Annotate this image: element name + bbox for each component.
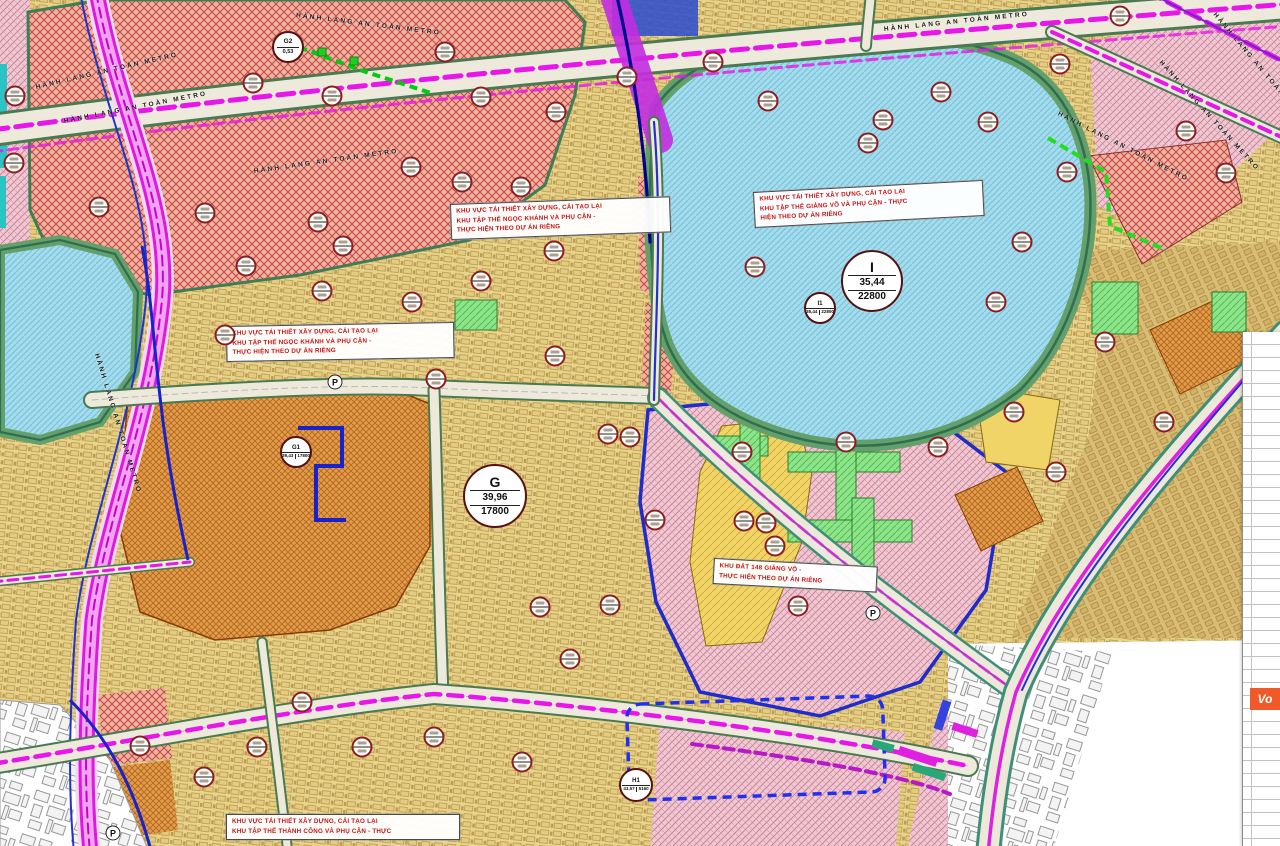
- parcel-marker: [512, 752, 533, 773]
- zone-id: G: [490, 475, 501, 489]
- parcel-marker: [89, 197, 110, 218]
- annotation-box: KHU VỰC TÁI THIẾT XÂY DỰNG, CẢI TẠO LẠI …: [753, 180, 985, 227]
- parcel-marker: [1176, 121, 1197, 142]
- parcel-marker: [471, 271, 492, 292]
- parcel-marker: [1095, 332, 1116, 353]
- metro-corridor-label: HÀNH LANG AN TOÀN METRO: [63, 90, 208, 125]
- parcel-marker: [788, 596, 809, 617]
- parcel-marker: [645, 510, 666, 531]
- zone-marker-g: G 39,96 17800: [463, 464, 527, 528]
- annotation-box: KHU ĐẤT 148 GIẢNG VÕ - THỰC HIỆN THEO DỰ…: [713, 558, 878, 593]
- zone-marker-g2: G2 0,53: [272, 31, 304, 63]
- parcel-marker: [1110, 6, 1131, 27]
- zone-value: 35,44: [805, 310, 820, 315]
- parcel-marker: [333, 236, 354, 257]
- parcel-marker: [732, 442, 753, 463]
- metro-corridor-label: HÀNH LANG AN TOÀN METRO: [884, 11, 1030, 34]
- parcel-marker: [322, 86, 343, 107]
- parcel-marker: [1004, 402, 1025, 423]
- parcel-marker: [544, 241, 565, 262]
- parcel-marker: [758, 91, 779, 112]
- parcel-marker: [1046, 462, 1067, 483]
- parcel-marker: [247, 737, 268, 758]
- parcel-marker: [873, 110, 894, 131]
- metro-corridor-label: HÀNH LANG AN TOÀN METRO: [35, 51, 179, 91]
- parcel-marker: [243, 73, 264, 94]
- parcel-marker: [765, 536, 786, 557]
- parking-icon: P: [866, 606, 881, 621]
- parcel-marker: [292, 692, 313, 713]
- parcel-marker: [452, 172, 473, 193]
- zone-id: H1: [632, 778, 640, 784]
- parcel-marker: [546, 102, 567, 123]
- parcel-marker: [734, 511, 755, 532]
- zone-area: 5160: [637, 787, 650, 792]
- zone-value: 39,96: [470, 490, 520, 506]
- parcel-marker: [195, 203, 216, 224]
- parking-icon: P: [106, 826, 121, 841]
- parcel-marker: [617, 67, 638, 88]
- planning-map[interactable]: HÀNH LANG AN TOÀN METROHÀNH LANG AN TOÀN…: [0, 0, 1280, 846]
- parcel-marker: [5, 86, 26, 107]
- parcel-marker: [511, 177, 532, 198]
- annotation-box: KHU VỰC TÁI THIẾT XÂY DỰNG, CẢI TẠO LẠI …: [226, 814, 460, 840]
- parcel-marker: [435, 42, 456, 63]
- labels-layer: HÀNH LANG AN TOÀN METROHÀNH LANG AN TOÀN…: [0, 0, 1280, 846]
- metro-corridor-label: HÀNH LANG AN TOÀN METRO: [1211, 11, 1280, 128]
- zone-marker-h1: H1 43,575160: [619, 768, 653, 802]
- parcel-marker: [703, 52, 724, 73]
- annotation-line: KHU VỰC TÁI THIẾT XÂY DỰNG, CẢI TẠO LẠI: [232, 818, 454, 827]
- parcel-marker: [836, 432, 857, 453]
- zone-value: 35,44: [848, 275, 897, 291]
- parcel-marker: [1216, 163, 1237, 184]
- zone-value: 0,53: [277, 47, 299, 55]
- zone-value: 43,57: [622, 787, 637, 792]
- zone-marker-i1: I1 35,4422800: [804, 292, 836, 324]
- parcel-marker: [215, 325, 236, 346]
- parcel-marker: [401, 157, 422, 178]
- parcel-marker: [194, 767, 215, 788]
- parcel-marker: [600, 595, 621, 616]
- legend-table: [1242, 332, 1280, 846]
- parcel-marker: [931, 82, 952, 103]
- parcel-marker: [530, 597, 551, 618]
- annotation-box: KHU VỰC TÁI THIẾT XÂY DỰNG, CẢI TẠO LẠI …: [226, 322, 455, 361]
- parcel-marker: [986, 292, 1007, 313]
- logo-fragment: Vo: [1250, 688, 1280, 710]
- annotation-line: KHU TẬP THỂ THÀNH CÔNG VÀ PHỤ CẬN - THỰC: [232, 828, 454, 837]
- parcel-marker: [424, 727, 445, 748]
- parcel-marker: [745, 257, 766, 278]
- zone-id: G1: [292, 445, 300, 451]
- parcel-marker: [312, 281, 333, 302]
- parcel-marker: [308, 212, 329, 233]
- parcel-marker: [978, 112, 999, 133]
- parcel-marker: [471, 87, 492, 108]
- metro-corridor-label: HÀNH LANG AN TOÀN METRO: [92, 353, 142, 495]
- parcel-marker: [236, 256, 257, 277]
- parcel-marker: [858, 133, 879, 154]
- parcel-marker: [545, 346, 566, 367]
- parcel-marker: [426, 369, 447, 390]
- parcel-marker: [1050, 54, 1071, 75]
- parcel-marker: [620, 427, 641, 448]
- zone-id: I: [870, 260, 874, 274]
- zone-marker-i: I 35,44 22800: [841, 250, 903, 312]
- parcel-marker: [560, 649, 581, 670]
- zone-marker-g1: G1 39,4317800: [280, 436, 312, 468]
- zone-id: I1: [817, 301, 822, 307]
- parcel-marker: [1154, 412, 1175, 433]
- parcel-marker: [756, 513, 777, 534]
- metro-corridor-label: HÀNH LANG AN TOÀN METRO: [253, 148, 399, 176]
- parcel-marker: [1012, 232, 1033, 253]
- parcel-marker: [928, 437, 949, 458]
- parcel-marker: [598, 424, 619, 445]
- zone-id: G2: [284, 39, 293, 46]
- parcel-marker: [402, 292, 423, 313]
- metro-corridor-label: HÀNH LANG AN TOÀN METRO: [1157, 59, 1260, 173]
- zone-area: 17800: [296, 454, 312, 459]
- zone-value: 39,43: [281, 454, 296, 459]
- zone-area: 22800: [858, 292, 886, 302]
- parcel-marker: [4, 153, 25, 174]
- parcel-marker: [130, 736, 151, 757]
- parking-icon: P: [328, 375, 343, 390]
- parcel-marker: [352, 737, 373, 758]
- zone-area: 22800: [820, 310, 836, 315]
- parcel-marker: [1057, 162, 1078, 183]
- annotation-box: KHU VỰC TÁI THIẾT XÂY DỰNG, CẢI TẠO LẠI …: [450, 196, 671, 239]
- metro-corridor-label: HÀNH LANG AN TOÀN METRO: [296, 12, 442, 38]
- zone-area: 17800: [481, 507, 509, 517]
